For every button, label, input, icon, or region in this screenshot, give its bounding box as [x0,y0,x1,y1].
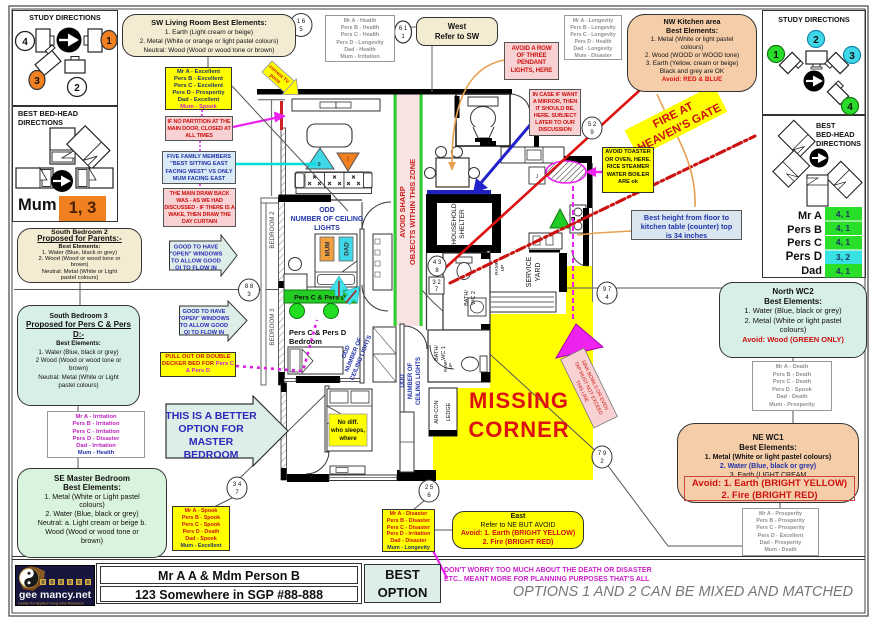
svg-text:8 8: 8 8 [245,284,254,290]
svg-text:4: 4 [22,37,28,48]
svg-text:Bedroom: Bedroom [289,337,322,346]
svg-text:BATH/: BATH/ [464,290,470,306]
svg-text:4, 1: 4, 1 [836,266,850,276]
svg-text:TO ALLOW GOOD: TO ALLOW GOOD [180,323,228,329]
svg-text:BATH/: BATH/ [434,345,440,361]
svg-text:OBJECTS WITHIN THIS ZONE: OBJECTS WITHIN THIS ZONE [408,159,417,265]
svg-text:gee mancy.net: gee mancy.net [19,589,92,601]
svg-text:3, 2: 3, 2 [836,252,850,262]
svg-text:4: 4 [847,102,853,113]
svg-text:ODD: ODD [400,374,406,388]
svg-text:6 1: 6 1 [399,26,408,32]
svg-text:GOOD TO HAVE: GOOD TO HAVE [174,245,219,251]
svg-text:UP: UP [448,363,453,369]
svg-text:BEDROOM 3: BEDROOM 3 [269,308,276,346]
svg-text:Dad: Dad [801,265,822,277]
svg-text:ODD: ODD [319,207,335,214]
svg-text:1: 1 [347,157,350,163]
svg-text:Pers C & Pers D: Pers C & Pers D [289,328,347,337]
svg-text:1: 1 [773,50,779,61]
svg-text:Pers D: Pers D [786,251,822,263]
svg-text:9 7: 9 7 [603,287,612,293]
svg-text:Pers B: Pers B [787,224,822,236]
svg-text:who sleeps,: who sleeps, [330,428,365,434]
svg-text:2: 2 [813,35,819,46]
svg-text:BEDROOM: BEDROOM [184,449,239,461]
svg-text:1: 1 [106,36,112,47]
svg-text:SERVICE: SERVICE [526,256,533,287]
svg-text:WC 1: WC 1 [441,346,447,360]
svg-text:THIS IS A BETTER: THIS IS A BETTER [165,410,257,422]
svg-text:UP: UP [500,265,506,272]
svg-text:Mr A: Mr A [798,210,822,222]
svg-text:"OPEN" WINDOWS: "OPEN" WINDOWS [179,316,230,322]
svg-text:OPTION FOR: OPTION FOR [178,423,244,435]
svg-text:AVOID SHARP: AVOID SHARP [398,186,407,238]
svg-text:GOOD TO HAVE: GOOD TO HAVE [183,309,226,315]
svg-text:HOUSEHOLD: HOUSEHOLD [451,203,458,244]
svg-text:QI TO FLOW IN: QI TO FLOW IN [175,266,217,272]
svg-text:NUMBER OF: NUMBER OF [408,363,414,400]
svg-text:3 4: 3 4 [233,482,242,488]
svg-text:4, 1: 4, 1 [836,223,850,233]
svg-text:BEDROOM 2: BEDROOM 2 [269,211,276,249]
svg-text:MUM: MUM [325,242,332,257]
svg-text:3 2: 3 2 [432,280,441,286]
svg-text:3: 3 [34,76,40,87]
svg-text:QI TO FLOW IN: QI TO FLOW IN [184,330,224,336]
svg-text:WC 2: WC 2 [471,291,477,305]
svg-text:5 2: 5 2 [588,122,597,128]
svg-text:No diff.: No diff. [338,420,359,426]
svg-text:4, 1: 4, 1 [836,209,850,219]
svg-text:"OPEN" WINDOWS: "OPEN" WINDOWS [170,252,223,258]
svg-text:where: where [338,436,357,442]
svg-text:YARD: YARD [535,263,542,282]
svg-text:Center for Applied Feng Shui R: Center for Applied Feng Shui Research [18,602,84,606]
svg-text:CEILING LIGHTS: CEILING LIGHTS [416,357,422,405]
svg-text:TO ALLOW GOOD: TO ALLOW GOOD [171,259,221,265]
svg-text:RAMP: RAMP [494,261,500,275]
svg-text:AIR-CON: AIR-CON [434,400,440,423]
svg-text:NUMBER OF CEILING: NUMBER OF CEILING [291,216,364,223]
svg-text:1 6: 1 6 [297,19,306,25]
svg-text:7 9: 7 9 [598,451,607,457]
svg-text:DAD: DAD [344,242,351,256]
svg-text:SHELTER: SHELTER [459,209,466,239]
svg-text:9: 9 [317,162,320,168]
svg-text:LIGHTS: LIGHTS [314,225,340,232]
svg-text:3: 3 [849,51,855,62]
svg-text:4, 1: 4, 1 [836,237,850,247]
svg-text:LEDGE: LEDGE [446,402,452,421]
svg-text:4 3: 4 3 [433,260,442,266]
svg-text:2: 2 [74,83,80,94]
svg-text:MASTER: MASTER [189,436,234,448]
svg-text:Pers C: Pers C [787,237,822,249]
svg-text:2 5: 2 5 [425,485,434,491]
